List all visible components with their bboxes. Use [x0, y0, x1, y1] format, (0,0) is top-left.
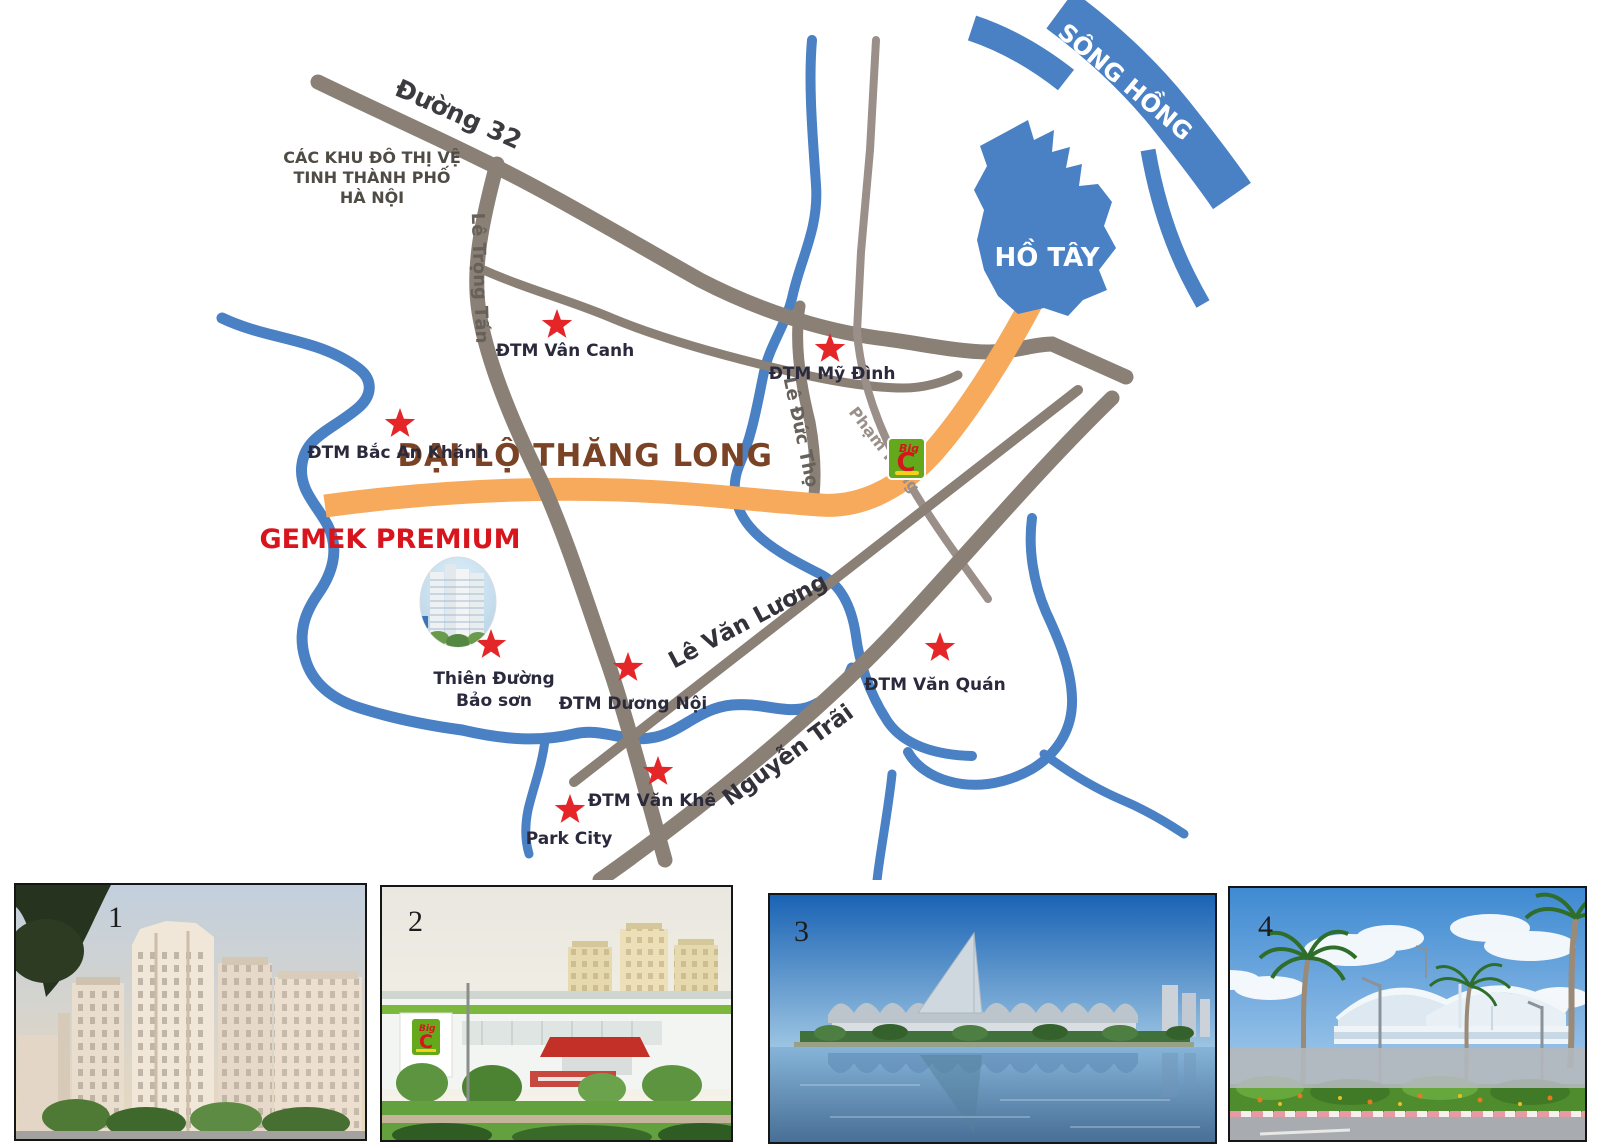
photo-3-image: 3: [770, 895, 1215, 1142]
photo-2-bigc-mall: Big C 2: [380, 885, 733, 1142]
project-photo-circle: [418, 557, 498, 650]
entrance-canopy: [540, 1037, 650, 1057]
song-hong-band-upper: [972, 28, 1066, 80]
photo-2-image: Big C 2: [382, 887, 731, 1140]
photo-1-apartments: 1: [14, 883, 367, 1141]
river-branch-south: [873, 774, 892, 880]
note-line-3: HÀ NỘI: [340, 187, 404, 207]
note-line-2: TINH THÀNH PHỐ: [294, 166, 451, 187]
water-label-ho-tay: HỒ TÂY: [994, 237, 1100, 273]
star-van-quan: [925, 632, 955, 661]
label-my-dinh: ĐTM Mỹ Đình: [769, 364, 896, 384]
label-thien-duong: Thiên Đường: [433, 669, 554, 689]
road-label-le-trong-tan: Lê Trọng Tấn: [467, 212, 493, 343]
label-van-canh: ĐTM Vân Canh: [496, 341, 635, 361]
photo-number: 1: [108, 901, 123, 934]
label-bao-son: Bảo sơn: [456, 691, 532, 711]
schematic-map: Đường 32 Lê Trọng Tấn Lê Đức Thọ Phạm Hù…: [0, 0, 1600, 880]
photo-4-stadium: 4: [1228, 886, 1587, 1142]
star-park-city: [555, 794, 585, 823]
label-duong-noi: ĐTM Dương Nội: [559, 694, 708, 714]
satellite-towns-note: CÁC KHU ĐÔ THỊ VỆ TINH THÀNH PHỐ HÀ NỘI: [283, 147, 461, 207]
photo-1-image: 1: [16, 885, 365, 1139]
ho-tay-lake: [974, 120, 1116, 316]
road-le-trong-tan: [477, 164, 665, 860]
location-map-infographic: Đường 32 Lê Trọng Tấn Lê Đức Thọ Phạm Hù…: [0, 0, 1600, 1148]
road-label-nguyen-trai: Nguyễn Trãi: [717, 699, 858, 812]
star-van-canh: [542, 309, 572, 338]
water-label-song-hong: SÔNG HỒNG: [1052, 14, 1200, 146]
photo-3-convention-center: 3: [768, 893, 1217, 1144]
street: [16, 1131, 365, 1139]
river-van-quan-loop: [908, 518, 1072, 785]
label-van-khe: ĐTM Văn Khê: [588, 791, 716, 811]
bigc-icon: Big C: [888, 438, 925, 479]
road-label-le-van-luong: Lê Văn Lương: [664, 569, 831, 674]
label-bac-an-khanh: ĐTM Bắc An Khánh: [307, 442, 488, 463]
project-name: GEMEK PREMIUM: [260, 524, 521, 555]
label-park-city: Park City: [526, 829, 613, 849]
river-branch-southeast: [1044, 754, 1184, 834]
label-van-quan: ĐTM Văn Quán: [864, 675, 1005, 695]
note-line-1: CÁC KHU ĐÔ THỊ VỆ: [283, 147, 461, 167]
photo-number: 3: [794, 915, 809, 948]
star-bac-an-khanh: [385, 408, 415, 437]
photo-number: 2: [408, 905, 423, 938]
photo-number: 4: [1258, 910, 1273, 943]
photo-4-image: 4: [1230, 888, 1585, 1140]
bigc-logo-photo: Big C: [412, 1019, 440, 1055]
highway-thang-long: [325, 300, 1033, 506]
lake-reflection: [770, 1047, 1215, 1142]
